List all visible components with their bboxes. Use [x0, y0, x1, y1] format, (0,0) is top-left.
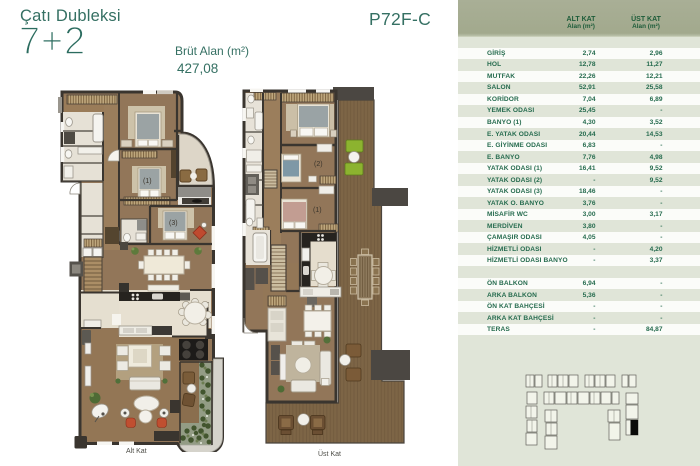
- svg-text:(1): (1): [313, 207, 322, 214]
- svg-text:(2): (2): [314, 161, 323, 168]
- svg-text:(1): (1): [143, 178, 152, 185]
- svg-text:(3): (3): [169, 220, 178, 227]
